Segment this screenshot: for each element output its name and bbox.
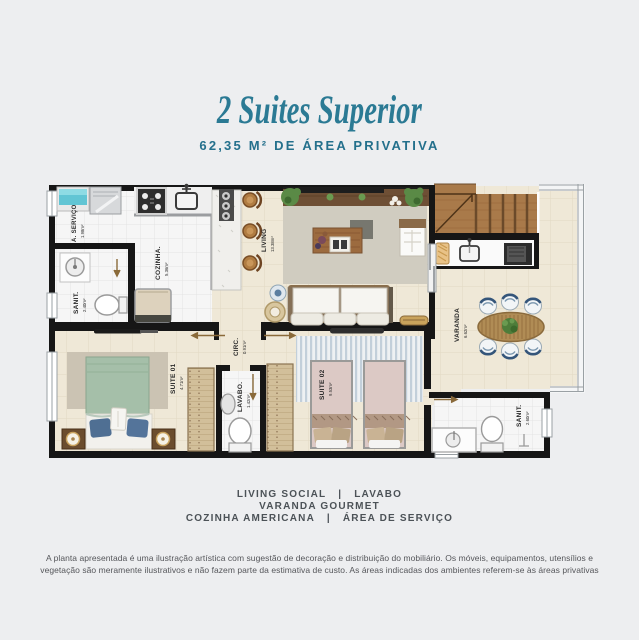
svg-text:1.98m²: 1.98m² — [80, 224, 85, 238]
svg-text:6.62m²: 6.62m² — [463, 324, 468, 338]
svg-text:COZINHA.: COZINHA. — [155, 246, 162, 280]
svg-text:1.42m²: 1.42m² — [246, 394, 251, 408]
svg-text:5.36m²: 5.36m² — [164, 262, 169, 276]
svg-text:VARANDA: VARANDA — [454, 308, 461, 342]
svg-text:13.38m²: 13.38m² — [270, 236, 275, 252]
svg-text:2.60m²: 2.60m² — [525, 411, 530, 425]
svg-text:9.53m²: 9.53m² — [328, 382, 333, 396]
svg-text:SUITE 02: SUITE 02 — [319, 369, 326, 400]
svg-text:CIRC.: CIRC. — [233, 338, 240, 356]
svg-text:0.91m²: 0.91m² — [242, 340, 247, 354]
svg-text:2.40m²: 2.40m² — [82, 298, 87, 312]
svg-text:SANIT.: SANIT. — [516, 405, 523, 427]
svg-text:LIVING: LIVING — [261, 229, 268, 252]
svg-text:LAVABO.: LAVABO. — [237, 382, 244, 412]
svg-text:SUITE 01: SUITE 01 — [170, 363, 177, 394]
svg-text:SANIT.: SANIT. — [73, 292, 80, 314]
svg-text:A. SERVIÇO: A. SERVIÇO — [72, 204, 78, 242]
svg-text:4.71m²: 4.71m² — [179, 376, 184, 390]
